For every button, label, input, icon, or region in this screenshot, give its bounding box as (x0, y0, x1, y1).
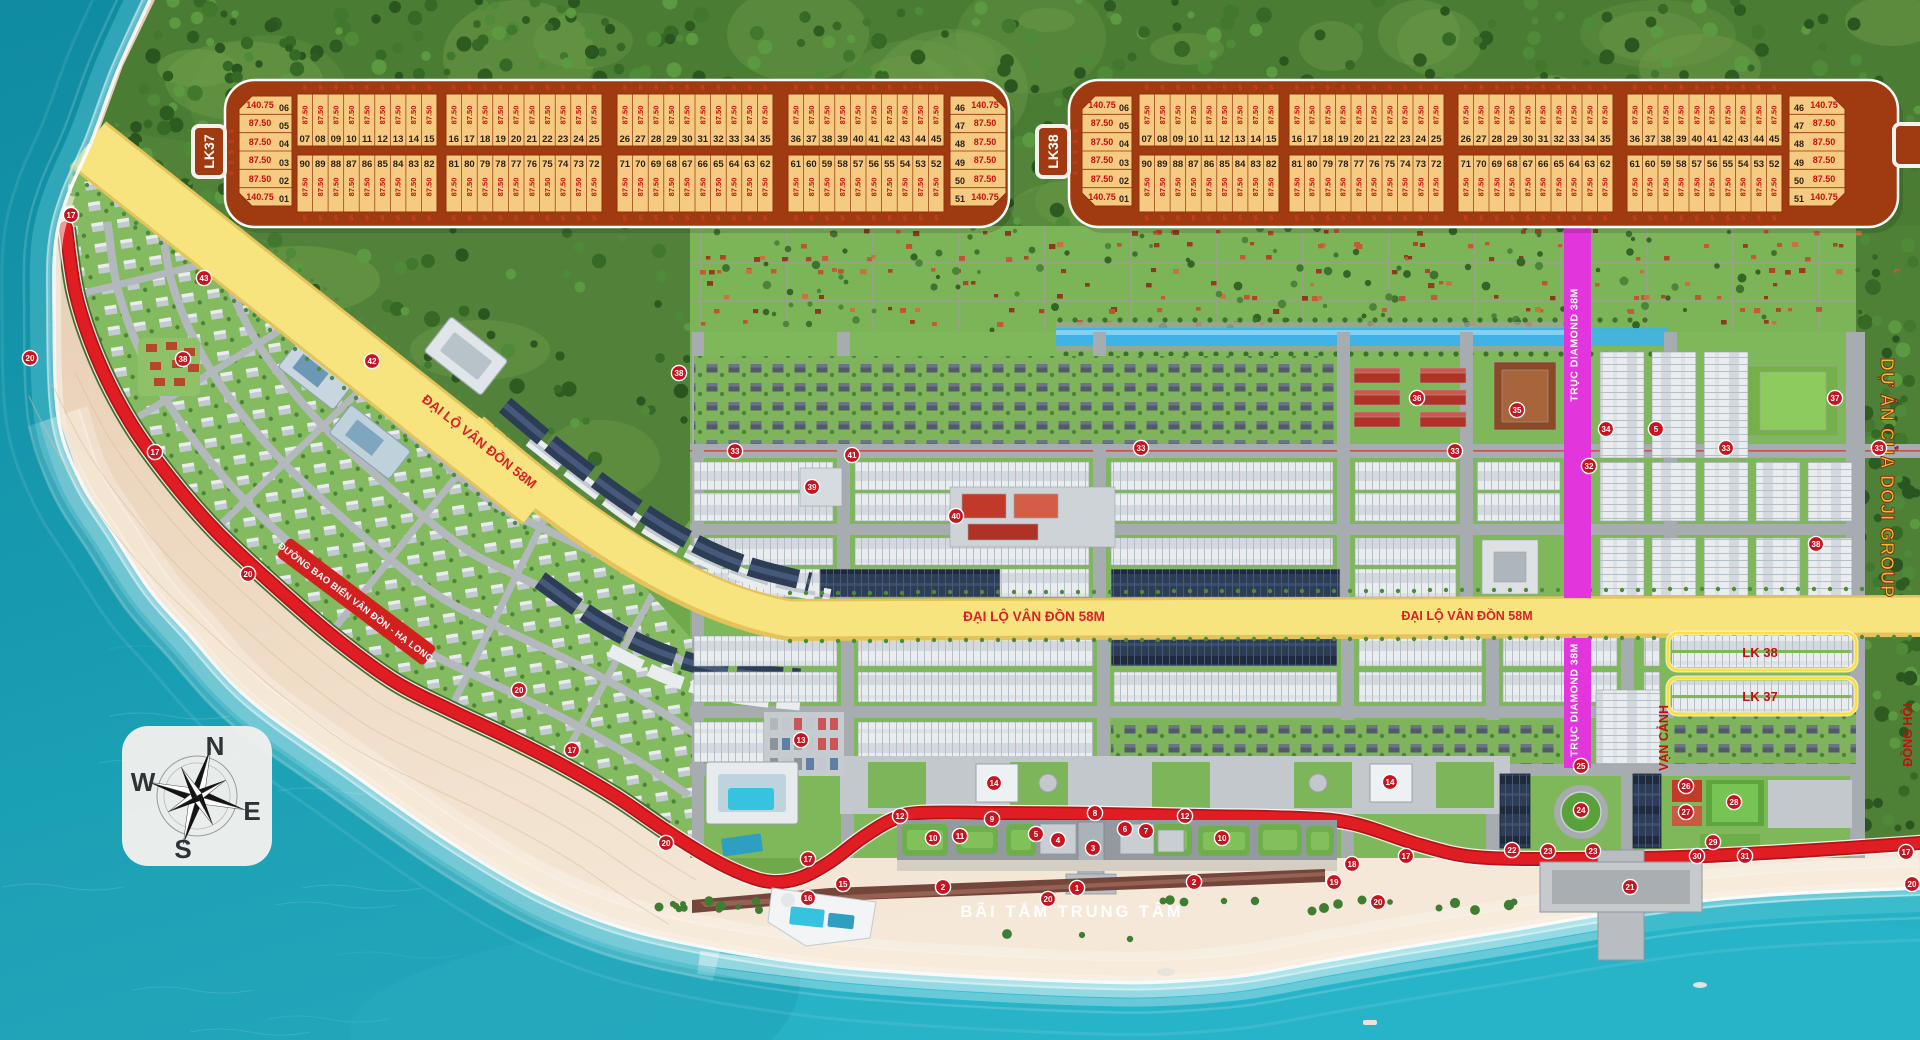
svg-text:E: E (243, 796, 260, 826)
svg-text:5: 5 (334, 216, 338, 223)
svg-text:5: 5 (561, 216, 565, 223)
svg-text:87.50: 87.50 (1416, 106, 1425, 125)
svg-text:5: 5 (623, 216, 627, 223)
svg-text:87.50: 87.50 (316, 106, 325, 125)
svg-text:5: 5 (318, 216, 322, 223)
svg-text:5: 5 (654, 85, 658, 92)
svg-text:89: 89 (315, 159, 326, 170)
svg-text:63: 63 (1585, 159, 1596, 170)
svg-text:87.50: 87.50 (409, 178, 418, 197)
svg-text:87.50: 87.50 (838, 106, 847, 125)
svg-text:5: 5 (1710, 216, 1714, 223)
svg-text:87.50: 87.50 (1813, 155, 1836, 165)
svg-text:5: 5 (856, 216, 860, 223)
svg-text:87.50: 87.50 (465, 178, 474, 197)
svg-text:87.50: 87.50 (745, 106, 754, 125)
svg-text:87.50: 87.50 (652, 178, 661, 197)
svg-text:17: 17 (1902, 848, 1911, 857)
svg-text:30: 30 (1693, 852, 1702, 861)
svg-text:17: 17 (1307, 134, 1318, 145)
svg-text:5: 5 (732, 85, 736, 92)
svg-text:87.50: 87.50 (543, 106, 552, 125)
svg-text:61: 61 (791, 159, 802, 170)
svg-text:5: 5 (763, 85, 767, 92)
svg-text:80: 80 (1307, 159, 1318, 170)
svg-text:5: 5 (1495, 85, 1499, 92)
svg-text:20: 20 (662, 839, 671, 848)
svg-text:5: 5 (381, 216, 385, 223)
svg-text:87.50: 87.50 (1539, 178, 1548, 197)
svg-text:5: 5 (685, 85, 689, 92)
svg-text:5: 5 (349, 85, 353, 92)
svg-text:87.50: 87.50 (363, 106, 372, 125)
svg-text:5: 5 (1223, 216, 1227, 223)
svg-text:17: 17 (464, 134, 475, 145)
svg-text:71: 71 (620, 159, 631, 170)
svg-text:87.50: 87.50 (1401, 178, 1410, 197)
svg-text:5: 5 (229, 160, 236, 164)
svg-text:87.50: 87.50 (854, 178, 863, 197)
svg-text:37: 37 (806, 134, 817, 145)
svg-text:21: 21 (527, 134, 538, 145)
svg-text:5: 5 (1419, 85, 1423, 92)
svg-text:87.50: 87.50 (1601, 178, 1610, 197)
svg-text:5: 5 (514, 85, 518, 92)
svg-text:87.50: 87.50 (1570, 106, 1579, 125)
svg-text:5: 5 (561, 85, 565, 92)
svg-text:72: 72 (1431, 159, 1442, 170)
svg-text:20: 20 (1044, 895, 1053, 904)
svg-text:87.50: 87.50 (838, 178, 847, 197)
svg-text:5: 5 (1341, 85, 1345, 92)
svg-text:5: 5 (1572, 216, 1576, 223)
svg-text:87.50: 87.50 (730, 178, 739, 197)
svg-text:80: 80 (464, 159, 475, 170)
svg-text:87.50: 87.50 (1173, 178, 1182, 197)
svg-text:10: 10 (929, 834, 938, 843)
svg-text:5: 5 (1403, 216, 1407, 223)
svg-text:31: 31 (1538, 134, 1549, 145)
svg-text:87.50: 87.50 (1158, 178, 1167, 197)
svg-text:57: 57 (1692, 159, 1703, 170)
svg-text:5: 5 (592, 216, 596, 223)
svg-text:87.50: 87.50 (559, 106, 568, 125)
svg-text:82: 82 (424, 159, 435, 170)
svg-text:87.50: 87.50 (496, 178, 505, 197)
svg-text:87.50: 87.50 (1677, 106, 1686, 125)
svg-text:5: 5 (1326, 216, 1330, 223)
svg-text:18: 18 (1323, 134, 1334, 145)
svg-text:87.50: 87.50 (1385, 178, 1394, 197)
svg-text:19: 19 (1330, 878, 1339, 887)
svg-text:87.50: 87.50 (667, 106, 676, 125)
svg-text:5: 5 (229, 171, 236, 175)
svg-text:40: 40 (952, 512, 961, 521)
svg-text:VẠN CẢNH: VẠN CẢNH (1656, 705, 1671, 771)
svg-text:16: 16 (804, 894, 813, 903)
svg-text:36: 36 (1413, 394, 1422, 403)
svg-text:5: 5 (396, 216, 400, 223)
svg-text:9: 9 (990, 815, 995, 824)
svg-text:33: 33 (1875, 444, 1884, 453)
svg-text:31: 31 (698, 134, 709, 145)
svg-text:11: 11 (1204, 134, 1215, 145)
svg-text:86: 86 (1204, 159, 1215, 170)
svg-text:39: 39 (808, 483, 817, 492)
svg-text:87.50: 87.50 (1236, 106, 1245, 125)
svg-text:87.50: 87.50 (932, 106, 941, 125)
svg-text:87.50: 87.50 (1630, 178, 1639, 197)
svg-text:5: 5 (1238, 85, 1242, 92)
svg-text:5: 5 (452, 216, 456, 223)
svg-text:5: 5 (1388, 85, 1392, 92)
svg-text:42: 42 (1723, 134, 1734, 145)
svg-text:5: 5 (1603, 85, 1607, 92)
svg-text:04: 04 (279, 139, 289, 149)
svg-text:5: 5 (1160, 85, 1164, 92)
svg-text:30: 30 (1523, 134, 1534, 145)
svg-text:38: 38 (822, 134, 833, 145)
svg-text:82: 82 (1266, 159, 1277, 170)
svg-text:87.50: 87.50 (730, 106, 739, 125)
svg-text:5: 5 (1479, 85, 1483, 92)
svg-text:12: 12 (1219, 134, 1230, 145)
svg-text:87.50: 87.50 (683, 106, 692, 125)
svg-text:22: 22 (1385, 134, 1396, 145)
svg-text:40: 40 (1692, 134, 1703, 145)
svg-text:5: 5 (334, 85, 338, 92)
svg-text:08: 08 (1157, 134, 1168, 145)
svg-text:87.50: 87.50 (1661, 106, 1670, 125)
svg-text:50: 50 (1794, 176, 1804, 186)
svg-text:87.50: 87.50 (331, 106, 340, 125)
svg-text:69: 69 (651, 159, 662, 170)
svg-text:24: 24 (1577, 806, 1586, 815)
svg-text:4: 4 (1056, 836, 1061, 845)
svg-text:17: 17 (151, 448, 160, 457)
svg-text:87.50: 87.50 (527, 106, 536, 125)
svg-text:5: 5 (483, 85, 487, 92)
svg-text:5: 5 (381, 85, 385, 92)
svg-text:140.75: 140.75 (1088, 192, 1116, 202)
svg-text:48: 48 (1794, 139, 1804, 149)
svg-text:87.50: 87.50 (481, 106, 490, 125)
svg-text:5: 5 (412, 85, 416, 92)
svg-text:5: 5 (716, 85, 720, 92)
svg-text:36: 36 (1630, 134, 1641, 145)
svg-text:5: 5 (1073, 129, 1080, 133)
svg-text:27: 27 (635, 134, 646, 145)
svg-text:5: 5 (452, 85, 456, 92)
svg-text:5: 5 (903, 85, 907, 92)
svg-text:79: 79 (480, 159, 491, 170)
svg-text:87.50: 87.50 (249, 174, 272, 184)
svg-text:87.50: 87.50 (347, 106, 356, 125)
svg-text:54: 54 (1738, 159, 1749, 170)
svg-text:45: 45 (1769, 134, 1780, 145)
svg-text:74: 74 (1400, 159, 1411, 170)
svg-text:19: 19 (495, 134, 506, 145)
svg-text:5: 5 (467, 216, 471, 223)
svg-text:67: 67 (1523, 159, 1534, 170)
svg-text:87.50: 87.50 (590, 178, 599, 197)
svg-text:15: 15 (1266, 134, 1277, 145)
svg-text:87.50: 87.50 (698, 106, 707, 125)
svg-text:87.50: 87.50 (425, 178, 434, 197)
svg-text:87.50: 87.50 (347, 178, 356, 197)
svg-text:38: 38 (1661, 134, 1672, 145)
svg-text:5: 5 (1238, 216, 1242, 223)
svg-text:59: 59 (822, 159, 833, 170)
svg-text:87.50: 87.50 (1523, 106, 1532, 125)
svg-text:87.50: 87.50 (823, 178, 832, 197)
svg-text:87.50: 87.50 (1142, 178, 1151, 197)
svg-text:49: 49 (955, 158, 965, 168)
svg-text:87.50: 87.50 (1646, 106, 1655, 125)
svg-text:35: 35 (1600, 134, 1611, 145)
svg-text:2: 2 (1192, 878, 1197, 887)
svg-text:02: 02 (1119, 176, 1129, 186)
svg-text:86: 86 (362, 159, 373, 170)
svg-text:5: 5 (365, 85, 369, 92)
svg-text:20: 20 (244, 570, 253, 579)
svg-text:5: 5 (1726, 216, 1730, 223)
svg-text:87.50: 87.50 (1189, 106, 1198, 125)
svg-text:87.50: 87.50 (465, 106, 474, 125)
svg-text:87.50: 87.50 (378, 106, 387, 125)
svg-text:30: 30 (682, 134, 693, 145)
svg-text:88: 88 (331, 159, 342, 170)
svg-text:5: 5 (1295, 85, 1299, 92)
svg-text:3: 3 (1091, 844, 1096, 853)
svg-text:5: 5 (1341, 216, 1345, 223)
svg-text:38: 38 (179, 355, 188, 364)
svg-text:87.50: 87.50 (974, 174, 997, 184)
svg-text:5: 5 (1160, 216, 1164, 223)
svg-text:84: 84 (393, 159, 404, 170)
svg-text:11: 11 (956, 832, 965, 841)
svg-text:87: 87 (1188, 159, 1199, 170)
svg-text:87.50: 87.50 (1251, 178, 1260, 197)
svg-text:5: 5 (1073, 150, 1080, 154)
svg-text:87.50: 87.50 (714, 178, 723, 197)
svg-text:5: 5 (1223, 85, 1227, 92)
svg-text:87.50: 87.50 (1370, 178, 1379, 197)
svg-text:5: 5 (1588, 85, 1592, 92)
svg-text:87.50: 87.50 (1292, 106, 1301, 125)
svg-text:87.50: 87.50 (249, 137, 272, 147)
svg-text:87.50: 87.50 (1708, 106, 1717, 125)
svg-text:19: 19 (1338, 134, 1349, 145)
svg-text:DỰ ÁN CỦA DOJI GROUP: DỰ ÁN CỦA DOJI GROUP (1877, 358, 1898, 598)
svg-text:16: 16 (1292, 134, 1303, 145)
svg-text:5: 5 (809, 85, 813, 92)
svg-text:87.50: 87.50 (1770, 106, 1779, 125)
svg-text:65: 65 (1554, 159, 1565, 170)
svg-text:13: 13 (797, 736, 806, 745)
svg-text:5: 5 (1757, 216, 1761, 223)
svg-text:5: 5 (1710, 85, 1714, 92)
svg-text:140.75: 140.75 (246, 100, 274, 110)
svg-text:06: 06 (1119, 103, 1129, 113)
svg-text:87.50: 87.50 (1339, 178, 1348, 197)
svg-text:14: 14 (1386, 778, 1395, 787)
svg-text:87.50: 87.50 (1461, 178, 1470, 197)
svg-text:46: 46 (955, 103, 965, 113)
svg-text:87.50: 87.50 (652, 106, 661, 125)
svg-text:5: 5 (1388, 216, 1392, 223)
svg-text:23: 23 (558, 134, 569, 145)
svg-text:5: 5 (794, 85, 798, 92)
svg-text:87.50: 87.50 (1158, 106, 1167, 125)
svg-text:87.50: 87.50 (667, 178, 676, 197)
svg-text:32: 32 (713, 134, 724, 145)
svg-text:87.50: 87.50 (1677, 178, 1686, 197)
svg-text:87.50: 87.50 (1601, 106, 1610, 125)
svg-text:S: S (174, 834, 191, 864)
svg-text:87.50: 87.50 (1523, 178, 1532, 197)
svg-text:5: 5 (919, 216, 923, 223)
svg-text:87.50: 87.50 (1292, 178, 1301, 197)
svg-text:70: 70 (635, 159, 646, 170)
svg-text:87.50: 87.50 (854, 106, 863, 125)
svg-text:71: 71 (1461, 159, 1472, 170)
svg-text:18: 18 (480, 134, 491, 145)
svg-text:5: 5 (499, 216, 503, 223)
svg-text:TRỤC DIAMOND 38M: TRỤC DIAMOND 38M (1569, 643, 1581, 757)
svg-text:31: 31 (1741, 852, 1750, 861)
svg-text:5: 5 (577, 85, 581, 92)
svg-text:87.50: 87.50 (1416, 178, 1425, 197)
svg-text:87.50: 87.50 (394, 106, 403, 125)
svg-text:11: 11 (362, 134, 373, 145)
svg-text:5: 5 (1679, 216, 1683, 223)
svg-text:79: 79 (1323, 159, 1334, 170)
svg-text:5: 5 (716, 216, 720, 223)
svg-text:33: 33 (1569, 134, 1580, 145)
svg-text:5: 5 (592, 85, 596, 92)
svg-text:87.50: 87.50 (363, 178, 372, 197)
svg-text:67: 67 (682, 159, 693, 170)
svg-text:50: 50 (955, 176, 965, 186)
svg-text:87.50: 87.50 (1236, 178, 1245, 197)
svg-text:40: 40 (853, 134, 864, 145)
svg-text:5: 5 (318, 85, 322, 92)
svg-text:57: 57 (853, 159, 864, 170)
svg-text:5: 5 (1403, 85, 1407, 92)
svg-text:87.50: 87.50 (620, 106, 629, 125)
svg-text:70: 70 (1476, 159, 1487, 170)
svg-text:5: 5 (1654, 425, 1659, 434)
svg-text:87.50: 87.50 (1267, 106, 1276, 125)
svg-text:63: 63 (744, 159, 755, 170)
svg-text:140.75: 140.75 (971, 192, 999, 202)
svg-text:55: 55 (1723, 159, 1734, 170)
svg-text:13: 13 (393, 134, 404, 145)
svg-text:87.50: 87.50 (378, 178, 387, 197)
svg-text:5: 5 (1633, 216, 1637, 223)
svg-text:87.50: 87.50 (1432, 178, 1441, 197)
svg-text:75: 75 (542, 159, 553, 170)
svg-text:87.50: 87.50 (1370, 106, 1379, 125)
svg-text:73: 73 (573, 159, 584, 170)
svg-text:87.50: 87.50 (1585, 178, 1594, 197)
svg-text:34: 34 (744, 134, 755, 145)
svg-text:5: 5 (1726, 85, 1730, 92)
svg-text:87.50: 87.50 (316, 178, 325, 197)
svg-text:5: 5 (1207, 216, 1211, 223)
svg-text:5: 5 (732, 216, 736, 223)
svg-text:90: 90 (300, 159, 311, 170)
svg-text:5: 5 (1557, 216, 1561, 223)
svg-text:87.50: 87.50 (901, 178, 910, 197)
svg-text:87.50: 87.50 (527, 178, 536, 197)
svg-text:LK37: LK37 (201, 134, 217, 168)
svg-text:25: 25 (1431, 134, 1442, 145)
svg-text:87.50: 87.50 (1477, 178, 1486, 197)
svg-text:5: 5 (1603, 216, 1607, 223)
svg-text:20: 20 (1374, 898, 1383, 907)
svg-text:5: 5 (638, 216, 642, 223)
svg-text:42: 42 (368, 357, 377, 366)
svg-text:W: W (131, 767, 156, 797)
svg-text:140.75: 140.75 (246, 192, 274, 202)
svg-text:20: 20 (1354, 134, 1365, 145)
svg-text:5: 5 (623, 85, 627, 92)
svg-text:90: 90 (1142, 159, 1153, 170)
svg-text:60: 60 (806, 159, 817, 170)
svg-text:38: 38 (675, 369, 684, 378)
svg-text:5: 5 (887, 85, 891, 92)
svg-text:87.50: 87.50 (331, 178, 340, 197)
svg-text:5: 5 (1295, 216, 1299, 223)
svg-text:35: 35 (760, 134, 771, 145)
svg-text:5: 5 (748, 85, 752, 92)
svg-text:5: 5 (365, 216, 369, 223)
svg-text:17: 17 (1402, 852, 1411, 861)
svg-text:47: 47 (1794, 121, 1804, 131)
svg-text:87.50: 87.50 (300, 178, 309, 197)
svg-text:41: 41 (869, 134, 880, 145)
svg-text:87.50: 87.50 (714, 106, 723, 125)
svg-text:01: 01 (279, 194, 289, 204)
svg-text:87.50: 87.50 (807, 178, 816, 197)
svg-text:5: 5 (825, 216, 829, 223)
svg-text:09: 09 (1173, 134, 1184, 145)
svg-text:5: 5 (1419, 216, 1423, 223)
svg-text:34: 34 (1602, 425, 1611, 434)
svg-text:66: 66 (1538, 159, 1549, 170)
svg-text:5: 5 (1479, 216, 1483, 223)
svg-text:09: 09 (331, 134, 342, 145)
svg-text:87.50: 87.50 (449, 178, 458, 197)
svg-text:89: 89 (1157, 159, 1168, 170)
svg-text:48: 48 (955, 139, 965, 149)
svg-text:5: 5 (577, 216, 581, 223)
svg-text:73: 73 (1416, 159, 1427, 170)
svg-text:87.50: 87.50 (1354, 178, 1363, 197)
svg-text:5: 5 (1434, 216, 1438, 223)
svg-text:5: 5 (825, 85, 829, 92)
svg-text:5: 5 (748, 216, 752, 223)
svg-text:44: 44 (915, 134, 926, 145)
svg-text:N: N (206, 731, 225, 761)
svg-text:LK 37: LK 37 (1742, 689, 1777, 704)
svg-text:87.50: 87.50 (1739, 106, 1748, 125)
svg-text:87.50: 87.50 (1461, 106, 1470, 125)
svg-text:03: 03 (279, 158, 289, 168)
svg-text:76: 76 (527, 159, 538, 170)
